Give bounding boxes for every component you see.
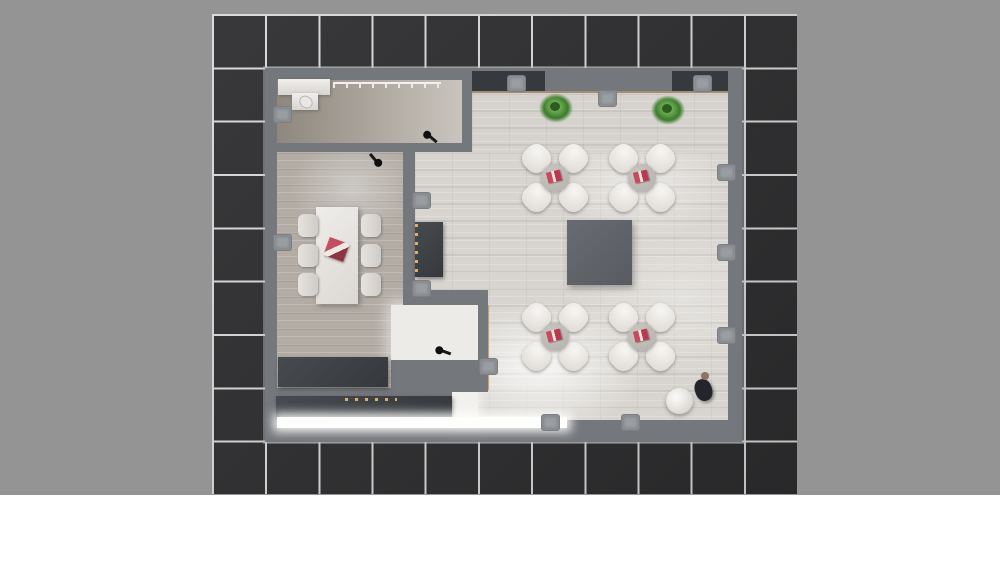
seating-group <box>609 145 675 211</box>
seating-group <box>522 304 588 370</box>
wall-light-box <box>541 414 560 431</box>
wall-light-box <box>412 192 431 209</box>
wall-light-box <box>507 75 526 92</box>
shelf-hooks <box>333 83 441 88</box>
presentation-slide: Bu Proje, 5846 Sayılı Fikir ve Sanat Ese… <box>0 0 1000 562</box>
sideboard-led-dots <box>415 224 418 274</box>
round-side-table <box>666 388 693 414</box>
wall-light-box <box>717 327 736 344</box>
person-head <box>701 372 709 380</box>
wall-light-box <box>598 90 617 107</box>
meeting-chair <box>298 244 318 267</box>
plant <box>646 91 690 129</box>
meeting-room-credenza <box>278 357 388 387</box>
wall-light-box <box>717 244 736 261</box>
stand-platform <box>265 68 742 442</box>
wall-light-box <box>479 358 498 375</box>
lit-floor-wedge <box>452 392 478 420</box>
wall-light-box <box>273 234 292 251</box>
hall-sideboard <box>415 222 443 277</box>
seating-group <box>609 304 675 370</box>
wall-light-box <box>273 106 292 123</box>
counter-led-dots <box>345 398 397 401</box>
wall-light-box <box>412 280 431 297</box>
floor-led-strip <box>277 417 567 428</box>
meeting-chair <box>361 244 381 267</box>
seating-group <box>522 145 588 211</box>
plant <box>534 89 578 127</box>
person-body <box>692 377 715 403</box>
meeting-chair <box>298 214 318 237</box>
central-block <box>567 220 632 285</box>
footer: Bu Proje, 5846 Sayılı Fikir ve Sanat Ese… <box>0 495 1000 562</box>
meeting-chair <box>361 214 381 237</box>
meeting-chair <box>361 273 381 296</box>
wall-light-box <box>621 414 640 431</box>
person <box>693 372 715 404</box>
wall-light-box <box>693 75 712 92</box>
wall-light-box <box>717 164 736 181</box>
meeting-chair <box>298 273 318 296</box>
